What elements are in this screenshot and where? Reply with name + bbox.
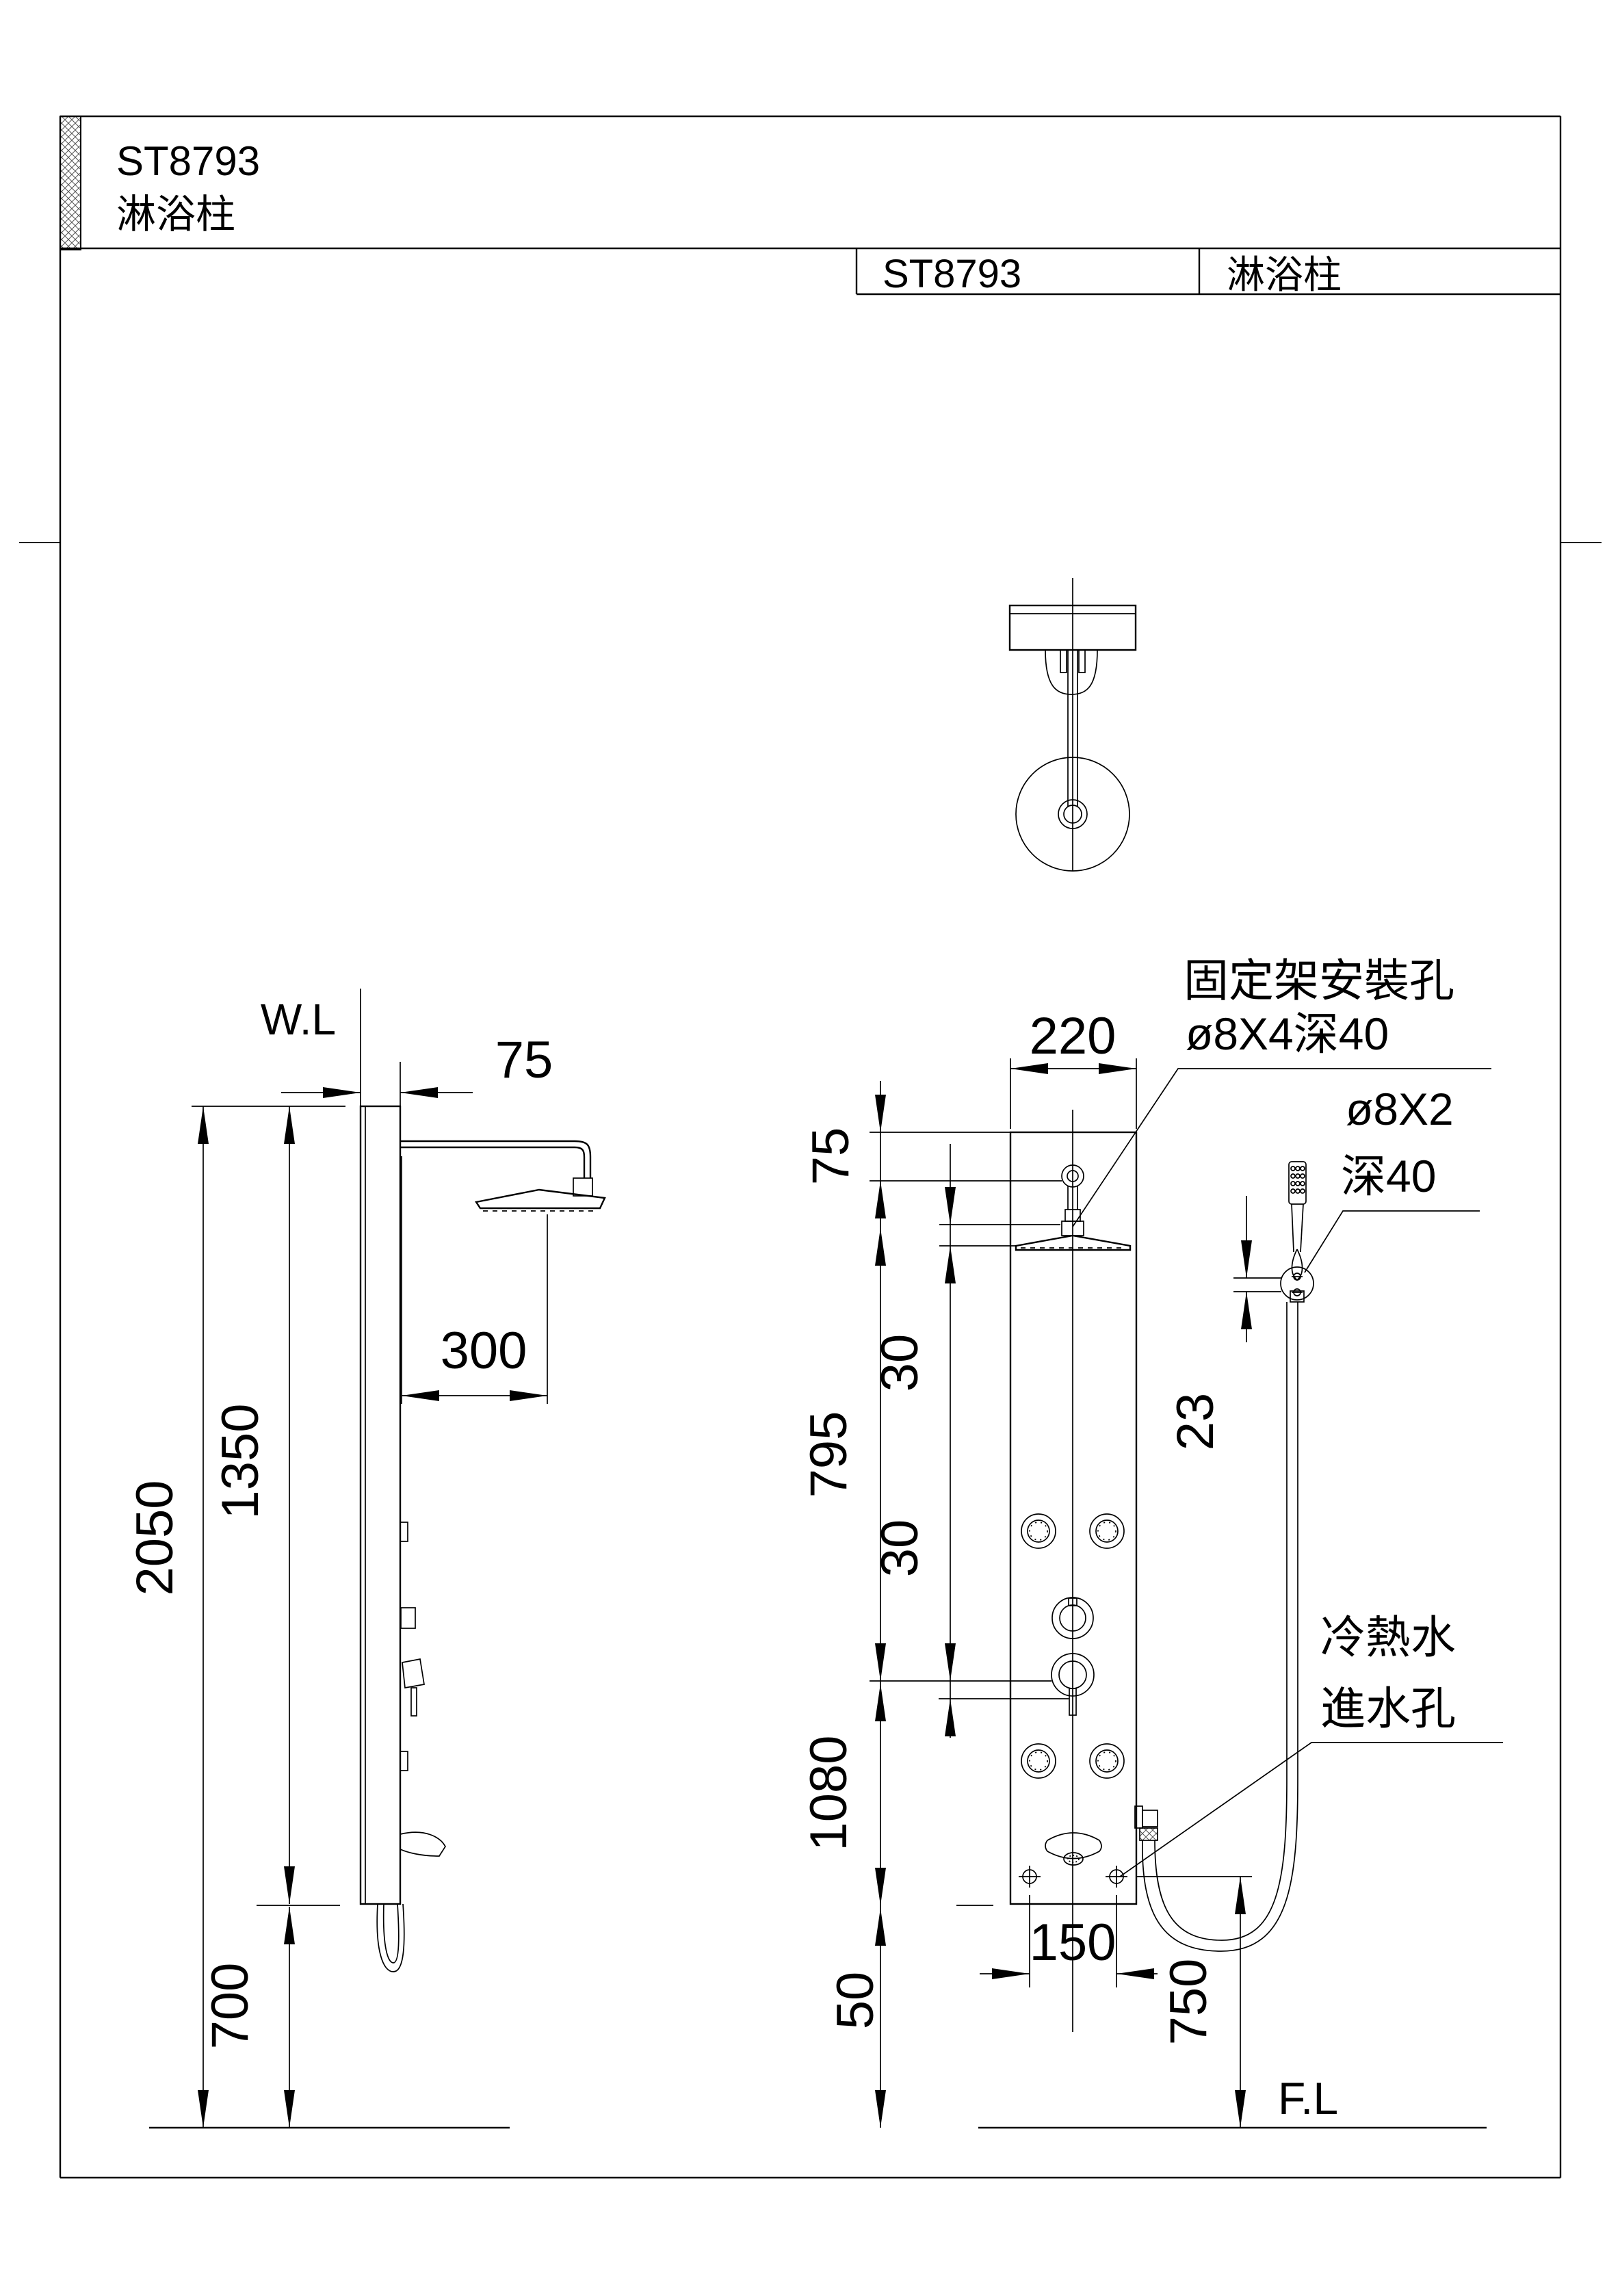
bracket-hole-spec: ø8X4深40 [1186,1008,1389,1059]
dim-hole-gap-upper-label: 30 [871,1334,929,1392]
side-view-spout [400,1832,445,1856]
holder-hole-spec-line1: ø8X2 [1346,1084,1454,1134]
bracket-hole-title: 固定架安裝孔 [1184,955,1454,1006]
side-view-upper-jet [400,1522,408,1541]
side-view: W.L 75 300 [126,989,605,2128]
floor-line-label: F.L [1278,2073,1338,2124]
dim-total-height-label: 2050 [126,1480,184,1595]
side-view-knob [401,1608,415,1628]
dim-holder-hole-gap-label: 23 [1166,1393,1225,1451]
page-title-product: 淋浴柱 [116,192,235,237]
hand-shower-holder [1281,1267,1314,1300]
top-view [1010,578,1136,871]
side-view-panel [361,1106,400,1904]
annotations: 固定架安裝孔 ø8X4深40 ø8X2 深40 冷熱水 進水孔 [1073,955,1503,1877]
dim-wall-offset-label: 75 [495,1031,553,1089]
dim-arm-reach-label: 300 [441,1322,527,1380]
water-inlet-line1: 冷熱水 [1320,1612,1456,1662]
side-view-diverter-handle [402,1659,424,1688]
side-view-lower-jet [400,1751,408,1771]
page-title-model: ST8793 [116,138,260,184]
dim-top-to-hole-label: 75 [802,1127,860,1186]
header-product-cell: 淋浴柱 [1227,253,1342,296]
dim-upper-span-label: 795 [800,1411,858,1498]
front-view-soap-dish [1045,1833,1101,1859]
shower-column-spec-drawing: ST8793 淋浴柱 ST8793 淋浴柱 W.L 75 [0,0,1620,2296]
dim-panel-width-label: 220 [1030,1007,1116,1065]
side-view-rain-head [476,1190,605,1208]
header-model-cell: ST8793 [883,252,1021,296]
dim-panel-height-label: 1350 [211,1403,270,1519]
water-inlet-line2: 進水孔 [1320,1683,1456,1734]
dim-bottom-margin-label: 50 [826,1972,885,2030]
water-inlet-leader [1120,1743,1503,1877]
holder-hole-spec-line2: 深40 [1341,1151,1436,1201]
holder-hole-leader [1305,1211,1480,1273]
dim-panel-to-floor-label: 700 [201,1963,259,2050]
dim-hole-gap-lower-label: 30 [871,1519,929,1578]
corner-hatch-block [60,116,81,250]
wall-line-label: W.L [261,995,336,1044]
header-table: ST8793 淋浴柱 [857,248,1560,296]
hand-shower [1281,1162,1314,1302]
dim-lower-span-label: 1080 [800,1735,858,1851]
top-view-mount-dome [1045,650,1097,694]
dim-inlet-spacing-label: 150 [1030,1914,1116,1972]
dim-holder-height-label: 750 [1160,1959,1218,2046]
